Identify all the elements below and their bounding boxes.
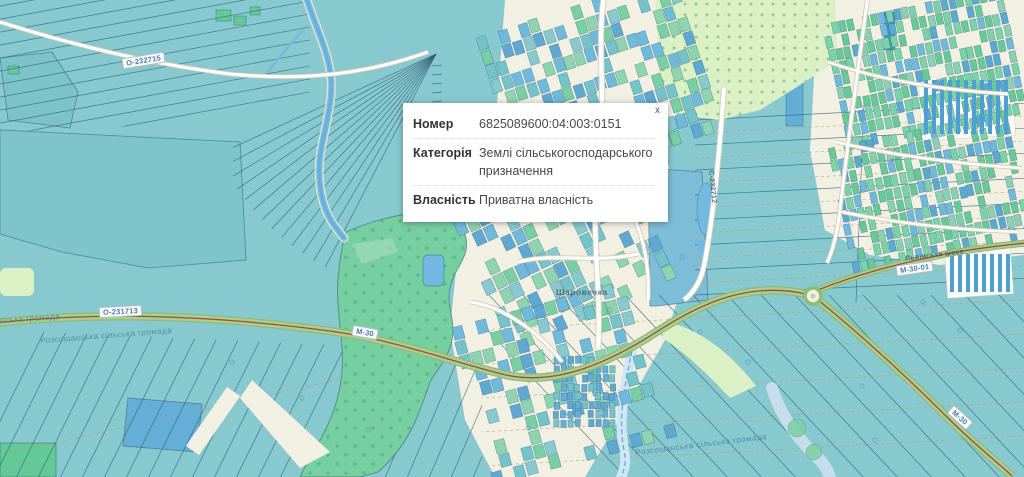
popup-ownership-value: Приватна власність — [479, 191, 656, 209]
popup-row-number: Номер 6825089600:04:003:0151 — [413, 110, 656, 138]
popup-ownership-label: Власність — [413, 191, 479, 209]
popup-category-label: Категорія — [413, 144, 479, 180]
popup-row-ownership: Власність Приватна власність — [413, 185, 656, 214]
cadastral-map-viewport[interactable]: О-232715 О-231713 М-30 М-30-01 М-30 С-23… — [0, 0, 1024, 477]
popup-number-label: Номер — [413, 115, 479, 133]
popup-row-category: Категорія Землі сільськогосподарського п… — [413, 138, 656, 185]
popup-category-value: Землі сільськогосподарського призначення — [479, 144, 656, 180]
popup-close-button[interactable]: x — [653, 104, 662, 118]
parcel-info-popup: x Номер 6825089600:04:003:0151 Категорія… — [403, 103, 668, 222]
cadastral-map-canvas[interactable] — [0, 0, 1024, 477]
popup-number-value: 6825089600:04:003:0151 — [479, 115, 656, 133]
